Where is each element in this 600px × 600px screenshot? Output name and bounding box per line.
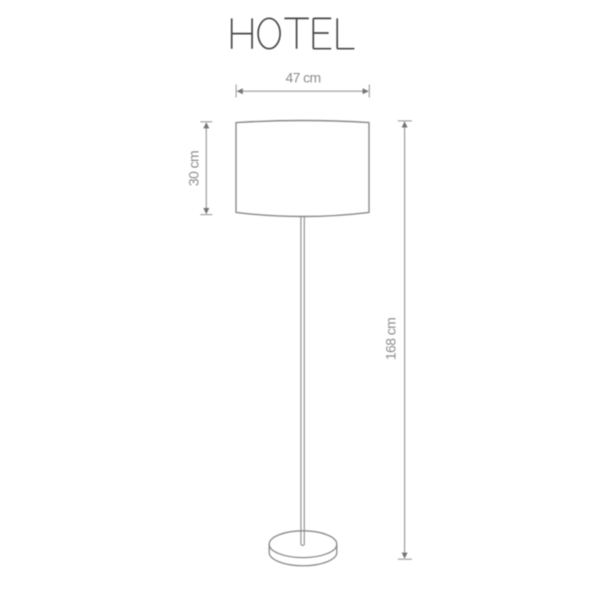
svg-text:168 cm: 168 cm: [382, 318, 398, 360]
svg-text:30 cm: 30 cm: [185, 151, 201, 186]
svg-text:47 cm: 47 cm: [285, 70, 320, 86]
